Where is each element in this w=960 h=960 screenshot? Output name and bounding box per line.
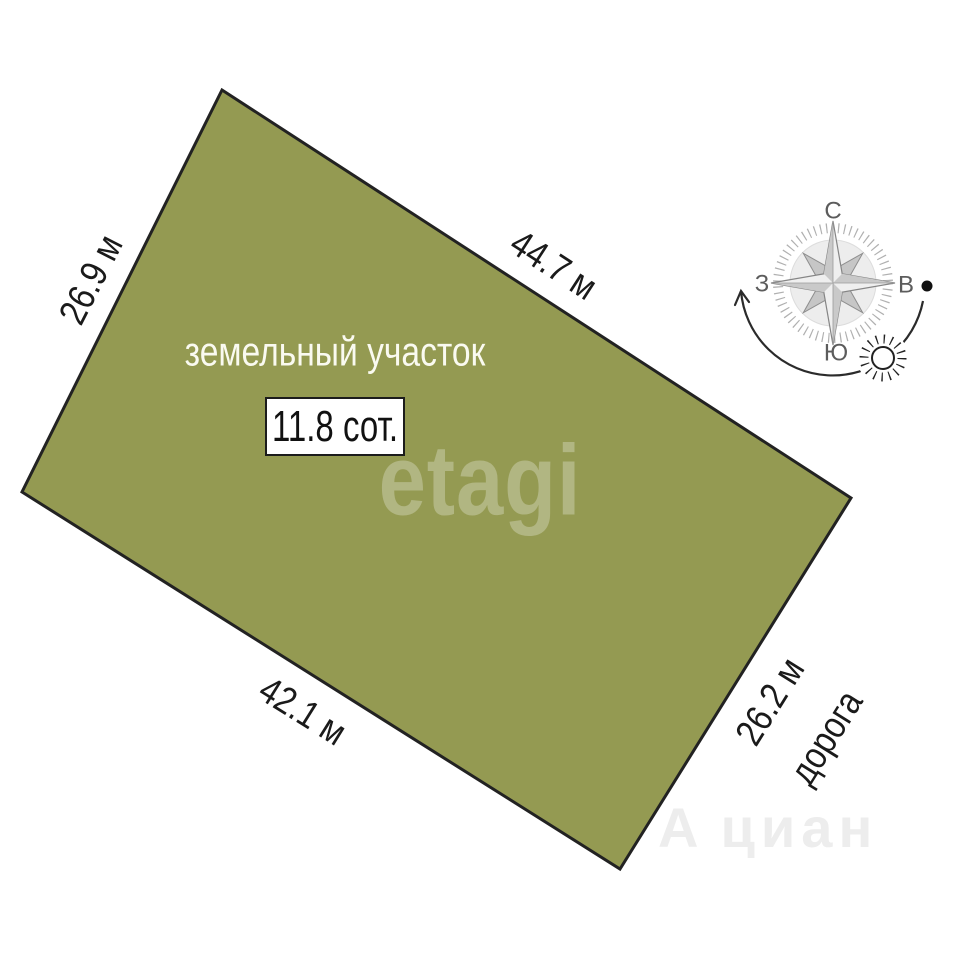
- area-box: 11.8 сот.: [265, 397, 405, 456]
- plot-title: земельный участок: [185, 329, 486, 376]
- etagi-watermark: etagi: [379, 424, 582, 539]
- compass-label-north: С: [824, 198, 841, 225]
- compass-label-east: В: [898, 272, 914, 299]
- compass-label-south: Ю: [824, 340, 848, 367]
- land-plot-diagram: А циан etagi земельный участок 11.8 сот.…: [0, 0, 960, 960]
- area-value: 11.8 сот.: [272, 402, 398, 452]
- sun-icon: [872, 347, 894, 369]
- compass-rose: С Ю З В: [713, 178, 953, 408]
- sun-path-start-dot: [922, 281, 933, 292]
- compass-label-west: З: [755, 271, 770, 298]
